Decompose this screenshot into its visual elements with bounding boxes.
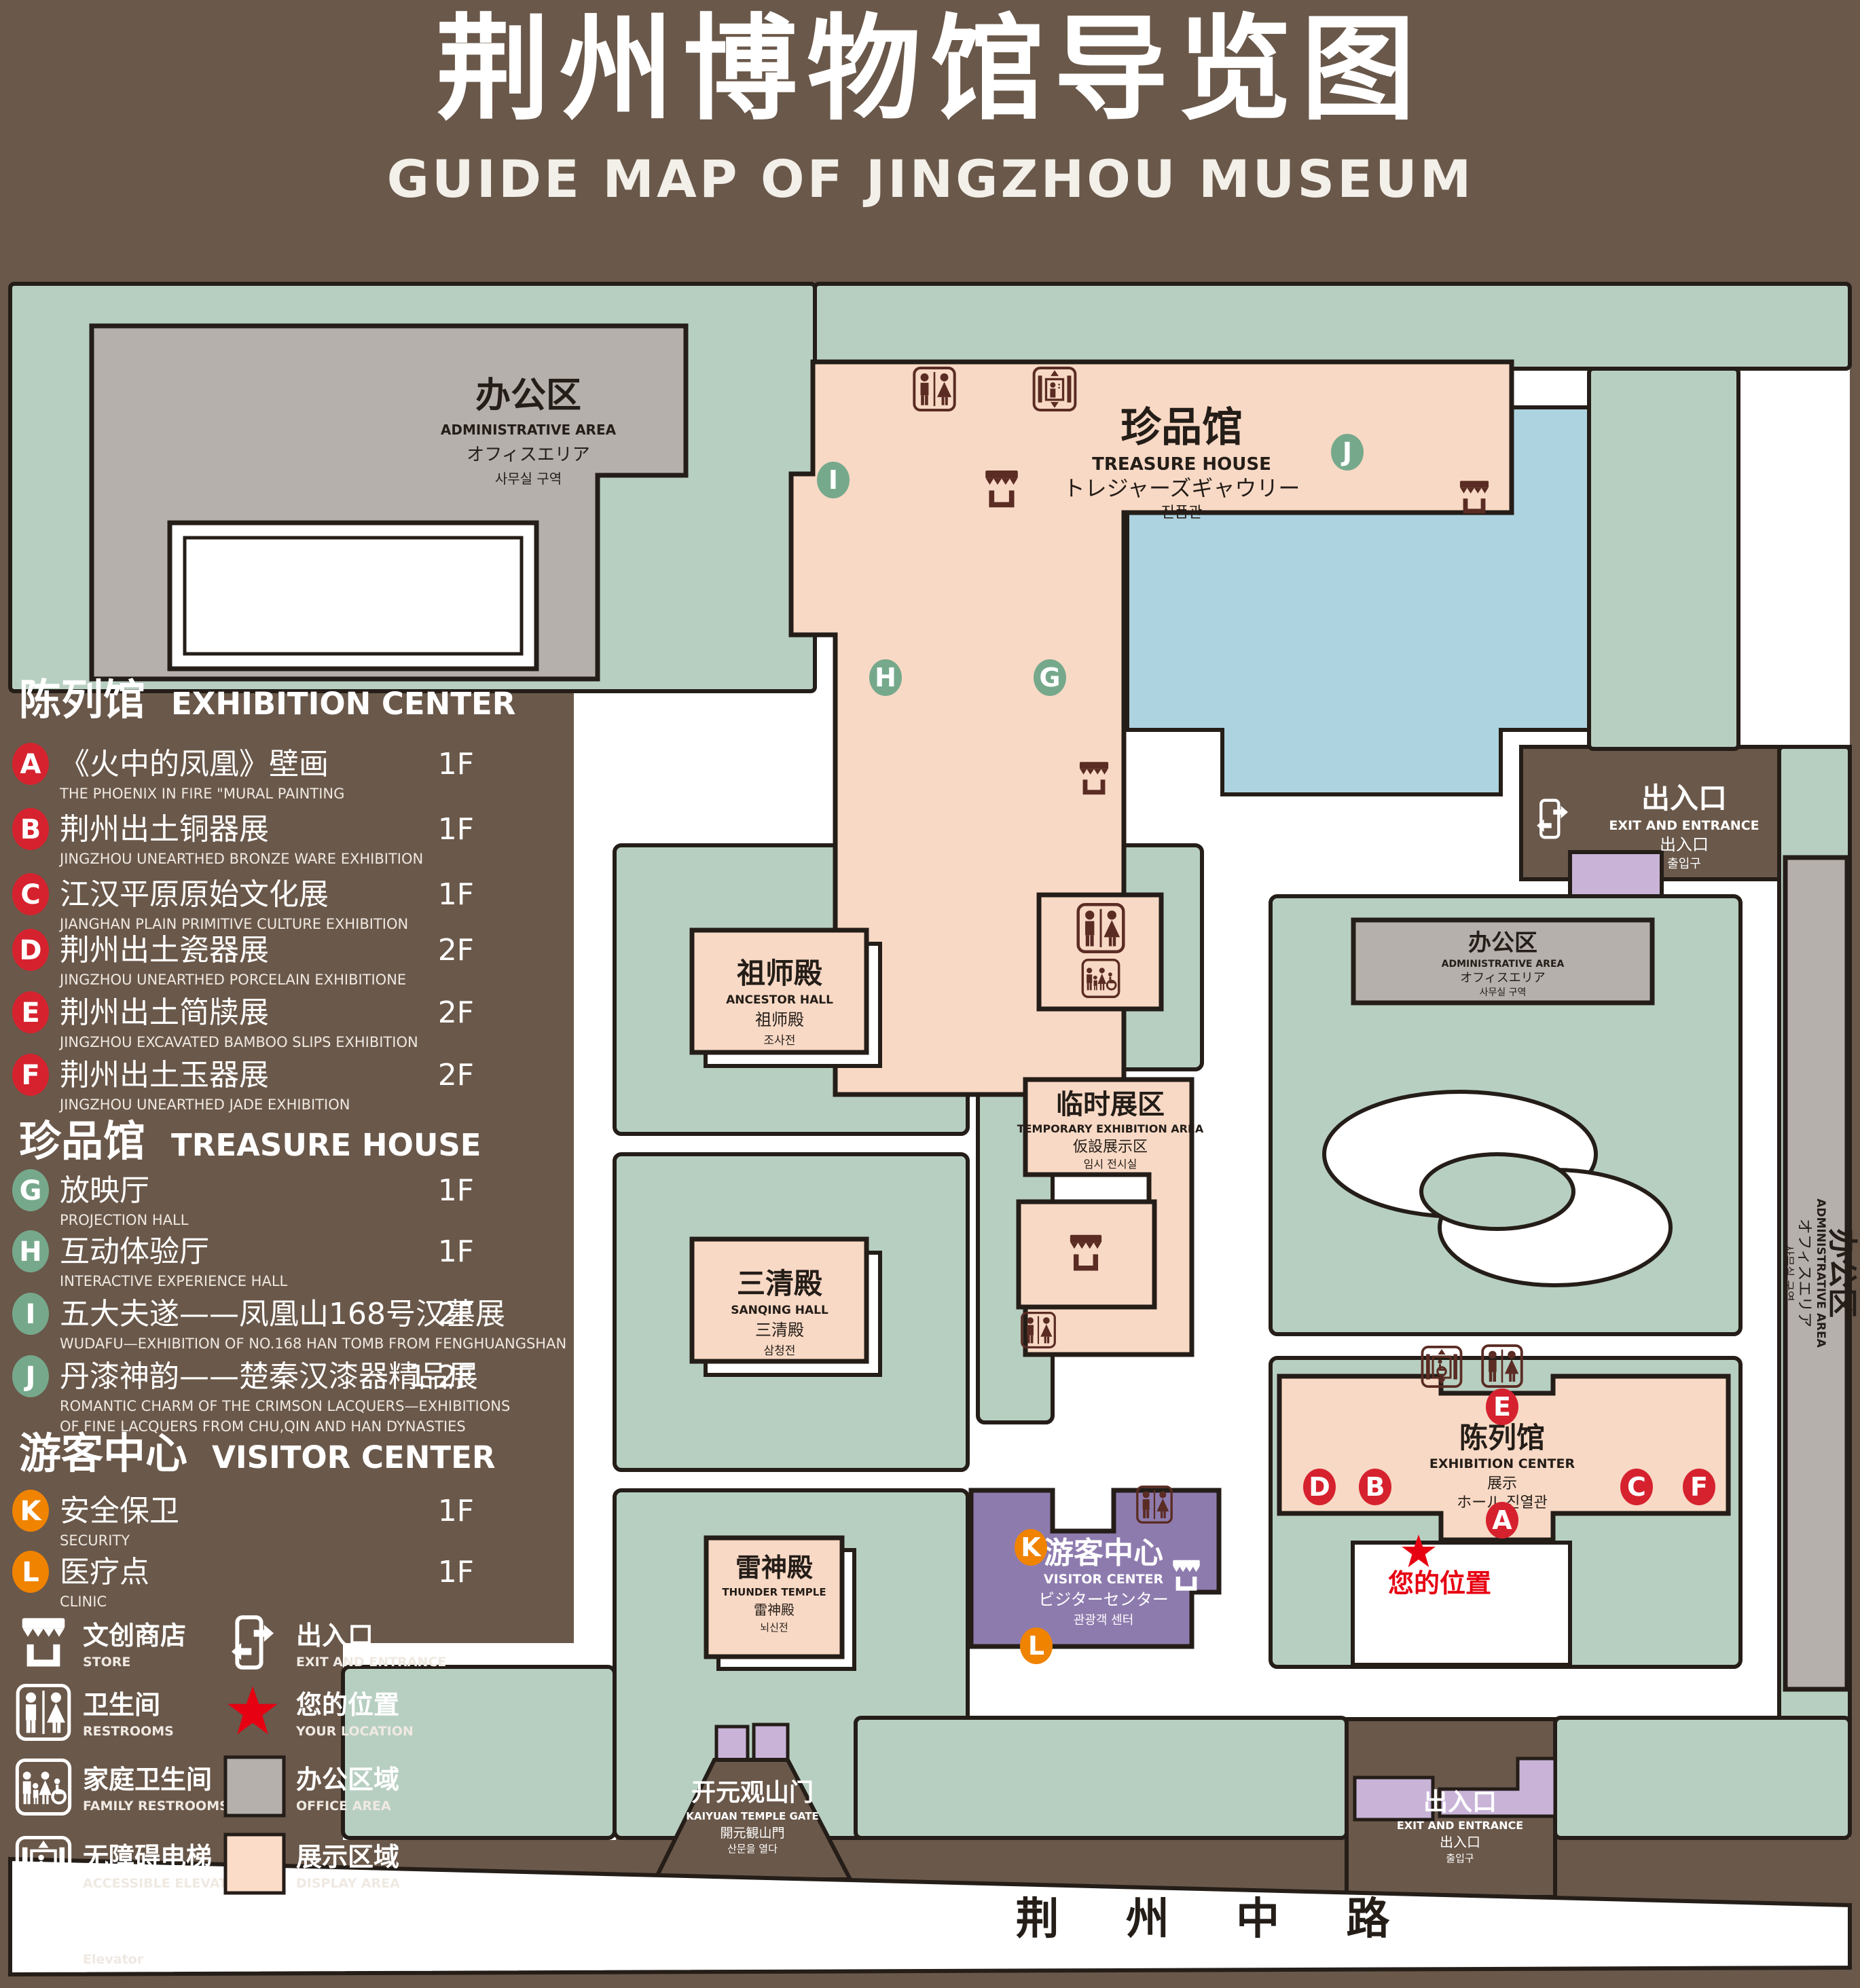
south-exit-label-zh: 出入口 xyxy=(1423,1788,1497,1816)
legend-heading-zh: 游客中心 xyxy=(19,1429,187,1478)
visitor-label-en: VISITOR CENTER xyxy=(1044,1572,1164,1587)
svg-text:DISPLAY AREA: DISPLAY AREA xyxy=(296,1876,400,1891)
svg-text:荆州出土铜器展: 荆州出土铜器展 xyxy=(60,812,269,847)
svg-text:JINGZHOU UNEARTHED BRONZE WARE: JINGZHOU UNEARTHED BRONZE WARE EXHIBITIO… xyxy=(58,851,423,867)
kaiyuan-label-zh: 开元观山门 xyxy=(691,1779,814,1807)
admin-cr-label-en: ADMINISTRATIVE AREA xyxy=(1442,959,1565,970)
svg-text:B: B xyxy=(20,814,41,845)
svg-text:D: D xyxy=(19,935,41,966)
svg-text:SECURITY: SECURITY xyxy=(60,1532,130,1549)
kaiyuan-label-en: KAIYUAN TEMPLE GATE xyxy=(686,1810,818,1822)
treasure-label-ko: 진품관 xyxy=(1161,504,1203,521)
svg-text:RESTROOMS: RESTROOMS xyxy=(83,1724,174,1739)
marker-F: F xyxy=(1683,1469,1715,1505)
legend-heading-en: TREASURE HOUSE xyxy=(171,1127,481,1163)
svg-text:FAMILY RESTROOMS: FAMILY RESTROOMS xyxy=(83,1799,229,1814)
svg-text:2F: 2F xyxy=(438,933,474,968)
admin-fr-label-ja: オフィスエリア xyxy=(1795,1219,1813,1328)
svg-text:1F: 1F xyxy=(438,812,474,847)
treasure-label-en: TREASURE HOUSE xyxy=(1092,454,1271,475)
kaiyuan-label-ja: 開元観山門 xyxy=(720,1826,784,1841)
thunder-label-zh: 雷神殿 xyxy=(735,1553,813,1583)
marker-D: D xyxy=(1303,1469,1336,1505)
treasure-label-zh: 珍品馆 xyxy=(1120,404,1243,452)
legend-heading-en: EXHIBITION CENTER xyxy=(171,686,515,722)
thunder-label-ko: 뇌신전 xyxy=(760,1621,788,1634)
svg-text:EXIT AND ENTRANCE: EXIT AND ENTRANCE xyxy=(296,1655,446,1670)
svg-text:C: C xyxy=(1627,1472,1646,1502)
svg-text:STORE: STORE xyxy=(83,1655,130,1670)
visitor-label-ko: 관광객 센터 xyxy=(1074,1613,1134,1627)
marker-K: K xyxy=(1015,1529,1047,1566)
marker-E: E xyxy=(1486,1388,1518,1425)
temp-label-en: TEMPORARY EXHIBITION AREA xyxy=(1017,1122,1204,1135)
marker-C: C xyxy=(1620,1469,1653,1505)
exhibition-label-zh: 陈列馆 xyxy=(1459,1421,1545,1454)
exhibition-label-l3: 展示 xyxy=(1487,1475,1517,1492)
svg-text:G: G xyxy=(20,1175,42,1207)
visitor-label-ja: ビジターセンター xyxy=(1038,1590,1169,1609)
svg-text:医疗点: 医疗点 xyxy=(60,1555,149,1589)
ancestor-label-en: ANCESTOR HALL xyxy=(726,993,833,1007)
building-ancestor-hall: 祖师殿 ANCESTOR HALL 祖师殿 조사전 xyxy=(692,930,880,1066)
svg-text:G: G xyxy=(1039,663,1060,693)
building-temporary-exhibition: 临时展区 TEMPORARY EXHIBITION AREA 仮設展示区 임시 … xyxy=(1017,1080,1204,1355)
svg-text:无障碍电梯: 无障碍电梯 xyxy=(83,1842,212,1872)
south-exit-label-ja: 出入口 xyxy=(1440,1834,1480,1850)
svg-text:J: J xyxy=(24,1361,36,1393)
svg-text:放映厅: 放映厅 xyxy=(60,1173,149,1208)
svg-text:INTERACTIVE EXPERIENCE HALL: INTERACTIVE EXPERIENCE HALL xyxy=(60,1273,288,1289)
svg-text:H: H xyxy=(875,663,896,693)
visitor-label-zh: 游客中心 xyxy=(1044,1536,1163,1570)
admin-cr-label-ko: 사무실 구역 xyxy=(1480,987,1527,998)
svg-text:L: L xyxy=(22,1557,39,1588)
svg-text:F: F xyxy=(1690,1472,1708,1502)
road-label: 荆 州 中 路 xyxy=(1016,1894,1416,1945)
office-area-swatch xyxy=(225,1757,284,1816)
marker-B: B xyxy=(1359,1469,1391,1505)
admin-nw-label-en: ADMINISTRATIVE AREA xyxy=(441,422,617,438)
ancestor-label-zh: 祖师殿 xyxy=(737,957,822,990)
ancestor-label-ko: 조사전 xyxy=(764,1034,796,1048)
your-location-label: 您的位置 xyxy=(1388,1568,1491,1598)
svg-text:1-2F: 1-2F xyxy=(408,1359,474,1394)
exhibition-label-en: EXHIBITION CENTER xyxy=(1429,1456,1575,1471)
svg-text:展示区域: 展示区域 xyxy=(296,1842,399,1872)
svg-text:您的位置: 您的位置 xyxy=(296,1690,399,1720)
marker-A: A xyxy=(1486,1502,1518,1539)
building-thunder-temple: 雷神殿 THUNDER TEMPLE 雷神殿 뇌신전 xyxy=(706,1538,854,1669)
svg-text:2F: 2F xyxy=(438,995,474,1030)
east-exit-label-en: EXIT AND ENTRANCE xyxy=(1609,818,1759,833)
east-exit-label-ko: 출입구 xyxy=(1667,857,1701,871)
svg-text:CLINIC: CLINIC xyxy=(60,1594,107,1610)
svg-text:1F: 1F xyxy=(438,1173,474,1208)
marker-J: J xyxy=(1331,434,1364,471)
svg-text:荆州出土瓷器展: 荆州出土瓷器展 xyxy=(60,933,269,968)
svg-text:Elevator: Elevator xyxy=(83,1952,144,1967)
south-exit-label-ko: 출입구 xyxy=(1446,1852,1474,1864)
legend-heading-en: VISITOR CENTER xyxy=(212,1439,496,1475)
svg-text:2F: 2F xyxy=(438,1058,474,1092)
treasure-label-ja: トレジャーズギャウリー xyxy=(1063,475,1300,501)
admin-nw-label-ja: オフィスエリア xyxy=(467,445,589,465)
sanqing-label-en: SANQING HALL xyxy=(731,1304,828,1317)
svg-text:《火中的凤凰》壁画: 《火中的凤凰》壁画 xyxy=(60,747,329,781)
building-admin-center-right: 办公区 ADMINISTRATIVE AREA オフィスエリア 사무실 구역 xyxy=(1353,920,1652,1003)
east-exit-label-zh: 出入口 xyxy=(1641,781,1727,815)
svg-text:L: L xyxy=(1028,1631,1044,1661)
admin-fr-label-ko: 사무실 구역 xyxy=(1781,1245,1795,1302)
svg-text:J: J xyxy=(1341,437,1352,467)
svg-text:1F: 1F xyxy=(438,877,474,912)
building-sanqing-hall: 三清殿 SANQING HALL 三清殿 삼청전 xyxy=(692,1239,880,1375)
building-east-gatehouse xyxy=(1570,852,1662,896)
svg-text:办公区域: 办公区域 xyxy=(296,1765,399,1794)
legend-heading-zh: 陈列馆 xyxy=(19,675,145,724)
svg-text:K: K xyxy=(1021,1532,1042,1562)
marker-I: I xyxy=(817,462,850,498)
svg-text:B: B xyxy=(1366,1472,1385,1502)
svg-text:K: K xyxy=(20,1496,43,1527)
svg-text:C: C xyxy=(20,879,40,910)
svg-text:JIANGHAN PLAIN PRIMITIVE CULTU: JIANGHAN PLAIN PRIMITIVE CULTURE EXHIBIT… xyxy=(58,916,408,932)
svg-text:I: I xyxy=(828,465,838,495)
sanqing-label-zh: 三清殿 xyxy=(737,1267,822,1300)
svg-text:卫生间: 卫生间 xyxy=(83,1690,160,1720)
svg-text:荆州出土玉器展: 荆州出土玉器展 xyxy=(60,1058,269,1092)
exhibition-plaza xyxy=(1353,1543,1570,1665)
sanqing-label-ko: 삼청전 xyxy=(764,1344,796,1358)
svg-text:A: A xyxy=(20,749,41,780)
svg-text:F: F xyxy=(21,1060,39,1091)
svg-text:互动体验厅: 互动体验厅 xyxy=(60,1234,209,1269)
svg-text:电梯: 电梯 xyxy=(83,1918,134,1948)
svg-text:I: I xyxy=(26,1299,36,1330)
svg-text:ROMANTIC CHARM OF THE CRIMSON: ROMANTIC CHARM OF THE CRIMSON LACQUERS—E… xyxy=(60,1398,510,1414)
display-area-swatch xyxy=(225,1835,284,1893)
admin-fr-label-zh: 办公区 xyxy=(1825,1228,1859,1318)
svg-text:YOUR LOCATION: YOUR LOCATION xyxy=(295,1724,414,1739)
ancestor-label-ja: 祖师殿 xyxy=(755,1010,804,1029)
building-admin-nw: 办公区 ADMINISTRATIVE AREA オフィスエリア 사무실 구역 xyxy=(92,326,686,679)
admin-cr-label-zh: 办公区 xyxy=(1468,929,1537,957)
svg-text:PROJECTION HALL: PROJECTION HALL xyxy=(60,1212,189,1228)
svg-text:WUDAFU—EXHIBITION OF NO.168 HA: WUDAFU—EXHIBITION OF NO.168 HAN TOMB FRO… xyxy=(60,1336,566,1352)
svg-text:安全保卫: 安全保卫 xyxy=(60,1494,179,1528)
svg-text:E: E xyxy=(1493,1392,1511,1422)
south-exit-label-en: EXIT AND ENTRANCE xyxy=(1397,1819,1523,1832)
east-exit-label-ja: 出入口 xyxy=(1660,835,1709,854)
svg-text:家庭卫生间: 家庭卫生间 xyxy=(83,1765,212,1794)
sanqing-label-ja: 三清殿 xyxy=(755,1321,804,1340)
temp-label-ja: 仮設展示区 xyxy=(1073,1139,1148,1156)
svg-text:江汉平原原始文化展: 江汉平原原始文化展 xyxy=(60,877,329,912)
svg-text:文创商店: 文创商店 xyxy=(83,1621,186,1651)
svg-text:1F: 1F xyxy=(438,1555,474,1589)
marker-H: H xyxy=(869,659,902,696)
thunder-label-ja: 雷神殿 xyxy=(754,1602,795,1618)
marker-G: G xyxy=(1034,659,1066,696)
kaiyuan-label-ko: 산문을 열다 xyxy=(727,1843,778,1855)
admin-nw-label-zh: 办公区 xyxy=(475,375,581,416)
svg-text:D: D xyxy=(1309,1472,1330,1502)
page-title: 荆州博物馆导览图 xyxy=(436,3,1425,136)
legend-heading-zh: 珍品馆 xyxy=(19,1116,145,1166)
svg-text:2F: 2F xyxy=(438,1297,474,1331)
temp-label-ko: 임시 전시실 xyxy=(1084,1158,1137,1171)
svg-text:H: H xyxy=(19,1236,41,1268)
admin-courtyard xyxy=(170,523,536,669)
thunder-label-en: THUNDER TEMPLE xyxy=(722,1586,826,1598)
page-subtitle: GUIDE MAP OF JINGZHOU MUSEUM xyxy=(387,149,1474,209)
legend-item-I: I 五大夫遂——凤凰山168号汉墓展 2F WUDAFU—EXHIBITION … xyxy=(12,1293,566,1352)
svg-text:荆州出土简牍展: 荆州出土简牍展 xyxy=(60,995,269,1030)
store-kiosk xyxy=(1019,1202,1154,1307)
svg-text:THE PHOENIX IN FIRE "MURAL PAI: THE PHOENIX IN FIRE "MURAL PAINTING xyxy=(59,786,344,802)
temp-label-zh: 临时展区 xyxy=(1056,1089,1165,1120)
svg-text:JINGZHOU UNEARTHED JADE EXHIBI: JINGZHOU UNEARTHED JADE EXHIBITION xyxy=(58,1097,350,1113)
svg-text:JINGZHOU EXCAVATED BAMBOO SLIP: JINGZHOU EXCAVATED BAMBOO SLIPS EXHIBITI… xyxy=(58,1034,418,1050)
svg-text:JINGZHOU UNEARTHED PORCELAIN E: JINGZHOU UNEARTHED PORCELAIN EXHIBITIONE xyxy=(58,972,406,988)
admin-fr-label-en: ADMINISTRATIVE AREA xyxy=(1814,1198,1827,1348)
marker-L: L xyxy=(1020,1627,1053,1664)
svg-text:1F: 1F xyxy=(438,1494,474,1528)
svg-text:A: A xyxy=(1492,1505,1512,1535)
svg-text:1F: 1F xyxy=(438,1234,474,1269)
svg-text:出入口: 出入口 xyxy=(296,1621,373,1651)
building-central-restrooms xyxy=(1039,895,1161,1009)
guide-map-poster: 荆州博物馆导览图 GUIDE MAP OF JINGZHOU MUSEUM xyxy=(0,0,1860,1988)
svg-text:1F: 1F xyxy=(438,747,474,781)
svg-text:OFFICE AREA: OFFICE AREA xyxy=(296,1799,391,1814)
building-admin-far-right: 办公区 ADMINISTRATIVE AREA オフィスエリア 사무실 구역 xyxy=(1781,858,1859,1689)
svg-text:E: E xyxy=(21,997,39,1029)
admin-cr-label-ja: オフィスエリア xyxy=(1460,971,1546,985)
admin-nw-label-ko: 사무실 구역 xyxy=(495,471,562,487)
